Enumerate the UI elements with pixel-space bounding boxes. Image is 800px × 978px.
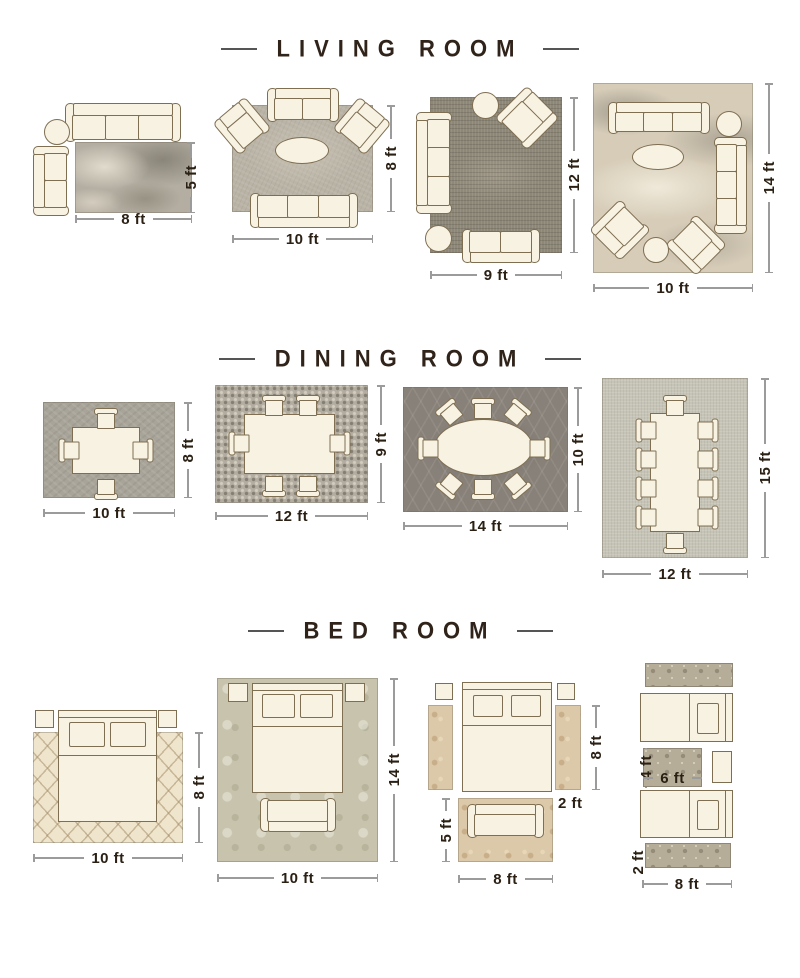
dining-layout-14x10: 10 ft 14 ft	[400, 383, 580, 531]
dining-chair	[262, 476, 286, 497]
title-dash-left	[219, 358, 255, 360]
section-title-text: BED ROOM	[304, 617, 497, 645]
rug-height-dimension: 8 ft	[180, 402, 196, 498]
rug-width-dimension: 10 ft	[43, 505, 175, 521]
section-title-bed-room: BED ROOM	[0, 618, 800, 644]
dimension-label: 10 ft	[92, 506, 125, 521]
rug-width-dimension: 10 ft	[232, 231, 373, 247]
dimension-label: 8 ft	[493, 872, 518, 887]
sofa-three-seat	[714, 137, 747, 234]
dimension-label: 2 ft	[631, 850, 646, 875]
rug-width-dimension: 10 ft	[593, 280, 753, 296]
runner-rug	[428, 705, 453, 790]
nightstand	[35, 710, 54, 728]
dining-chair	[663, 395, 687, 416]
dining-chair	[636, 419, 657, 443]
dining-chair	[296, 395, 320, 416]
runner-width-dimension: 2 ft	[551, 795, 585, 811]
dining-chair	[471, 479, 495, 500]
dining-chair	[262, 395, 286, 416]
dimension-label: 2 ft	[558, 796, 583, 811]
rug-width-dimension: 10 ft	[217, 870, 378, 886]
accent-rug-width-dimension: 6 ft	[643, 770, 702, 786]
bench	[467, 804, 544, 838]
dining-chair	[530, 437, 551, 461]
runner-length-dimension: 8 ft	[588, 705, 604, 790]
title-dash-right	[543, 48, 579, 50]
rug-width-dimension: 12 ft	[602, 566, 748, 582]
rug-width-dimension: 8 ft	[458, 871, 553, 887]
bed	[252, 683, 343, 793]
dimension-label: 8 ft	[384, 146, 399, 171]
dining-chair	[471, 398, 495, 419]
dining-chair	[663, 533, 687, 554]
rug-width-dimension: 14 ft	[403, 518, 568, 534]
bed	[462, 682, 552, 792]
bed-layout-10x14: 14 ft 10 ft	[210, 672, 402, 884]
round-side-table	[425, 225, 452, 252]
sofa-three-seat	[250, 193, 358, 228]
rug-width-dimension: 10 ft	[33, 850, 183, 866]
dimension-label: 9 ft	[374, 432, 389, 457]
runner-rug	[645, 663, 733, 687]
sofa-three-seat	[65, 103, 181, 142]
dimension-label: 9 ft	[484, 268, 509, 283]
dimension-label: 15 ft	[758, 451, 773, 484]
rug	[75, 142, 192, 213]
dining-chair	[94, 479, 118, 500]
rug-height-dimension: 8 ft	[383, 105, 399, 212]
dimension-label: 12 ft	[658, 567, 691, 582]
section-title-text: DINING ROOM	[275, 345, 526, 373]
dining-chair	[418, 437, 439, 461]
nightstand	[435, 683, 453, 700]
dining-chair	[133, 439, 154, 463]
round-side-table	[716, 111, 742, 137]
title-dash-left	[248, 630, 284, 632]
dimension-label: 14 ft	[387, 753, 402, 786]
dining-chair	[698, 477, 719, 501]
dimension-label: 8 ft	[589, 735, 604, 760]
dining-chair	[229, 432, 250, 456]
rug-width-dimension: 8 ft	[75, 211, 192, 227]
dining-layout-10x8: 8 ft 10 ft	[35, 395, 203, 523]
dimension-label: 12 ft	[567, 158, 582, 191]
dimension-label: 10 ft	[281, 871, 314, 886]
runner-rug	[645, 843, 731, 868]
dining-table	[244, 414, 335, 474]
dimension-label: 10 ft	[91, 851, 124, 866]
sofa-three-seat	[608, 102, 710, 134]
dimension-label: 12 ft	[275, 509, 308, 524]
round-side-table	[472, 92, 499, 119]
dining-chair	[94, 408, 118, 429]
dimension-label: 5 ft	[439, 818, 454, 843]
rug-height-dimension: 15 ft	[757, 378, 773, 558]
nightstand	[345, 683, 365, 702]
title-dash-left	[221, 48, 257, 50]
loveseat	[33, 146, 69, 216]
dimension-label: 14 ft	[762, 161, 777, 194]
runner-length-dimension: 8 ft	[642, 876, 732, 892]
dimension-label: 5 ft	[184, 165, 199, 190]
bed	[58, 710, 157, 822]
title-dash-right	[517, 630, 553, 632]
section-title-text: LIVING ROOM	[277, 35, 524, 63]
nightstand	[228, 683, 248, 702]
rug-height-dimension: 8 ft	[191, 732, 207, 843]
rug-height-dimension: 14 ft	[761, 83, 777, 273]
rug-height-dimension: 14 ft	[386, 678, 402, 862]
dimension-label: 10 ft	[286, 232, 319, 247]
oval-coffee-table	[632, 144, 684, 170]
dimension-label: 8 ft	[181, 438, 196, 463]
sofa-two-seat	[267, 88, 339, 122]
bench	[260, 798, 336, 832]
dining-chair	[636, 506, 657, 530]
twin-bed	[640, 790, 733, 838]
dimension-label: 10 ft	[656, 281, 689, 296]
dining-chair	[636, 448, 657, 472]
section-title-living-room: LIVING ROOM	[0, 36, 800, 62]
rug-height-dimension: 9 ft	[373, 385, 389, 503]
rug-height-dimension: 5 ft	[183, 142, 199, 213]
rug-height-dimension: 10 ft	[570, 387, 586, 512]
living-layout-9x12: 12 ft 9 ft	[408, 85, 590, 285]
living-layout-8x5: 5 ft 8 ft	[30, 95, 205, 235]
oval-coffee-table	[275, 137, 329, 164]
dining-chair	[698, 506, 719, 530]
dimension-label: 14 ft	[469, 519, 502, 534]
title-dash-right	[545, 358, 581, 360]
runner-width-dimension: 2 ft	[630, 843, 646, 868]
round-side-table	[643, 237, 669, 263]
dining-layout-12x9: 9 ft 12 ft	[210, 380, 388, 528]
dining-chair	[636, 477, 657, 501]
dining-chair	[59, 439, 80, 463]
dimension-label: 10 ft	[571, 433, 586, 466]
dining-chair	[330, 432, 351, 456]
round-side-table	[44, 119, 70, 145]
dining-chair	[698, 448, 719, 472]
section-title-dining-room: DINING ROOM	[0, 346, 800, 372]
bed-layout-twin-runners: 4 ft 6 ft 2 ft 8 ft	[630, 658, 792, 896]
living-layout-10x8: 8 ft 10 ft	[215, 85, 400, 247]
twin-bed	[640, 693, 733, 742]
dimension-label: 6 ft	[660, 771, 685, 786]
bed-layout-10x8: 8 ft 10 ft	[25, 700, 205, 868]
sofa-three-seat	[416, 112, 452, 214]
dimension-label: 8 ft	[121, 212, 146, 227]
dining-chair	[296, 476, 320, 497]
nightstand	[712, 751, 732, 783]
bed-layout-runners-8x5: 8 ft 2 ft 5 ft 8 ft	[425, 678, 613, 883]
nightstand	[557, 683, 575, 700]
rug-height-dimension: 5 ft	[438, 798, 454, 862]
dining-chair	[698, 419, 719, 443]
dining-table	[72, 427, 140, 474]
loveseat	[462, 229, 540, 263]
dining-table	[650, 413, 700, 532]
rug-height-dimension: 12 ft	[566, 97, 582, 253]
runner-rug	[555, 705, 581, 790]
dimension-label: 8 ft	[675, 877, 700, 892]
living-layout-10x14: 14 ft 10 ft	[588, 75, 790, 303]
dining-layout-12x15: 15 ft 12 ft	[595, 372, 783, 577]
rug-size-guide-infographic: LIVING ROOM 5 ft 8 ft 8 ft 10 ft 12 ft 9…	[0, 0, 800, 978]
dimension-label: 8 ft	[192, 775, 207, 800]
rug-width-dimension: 12 ft	[215, 508, 368, 524]
rug-width-dimension: 9 ft	[430, 267, 562, 283]
nightstand	[158, 710, 177, 728]
